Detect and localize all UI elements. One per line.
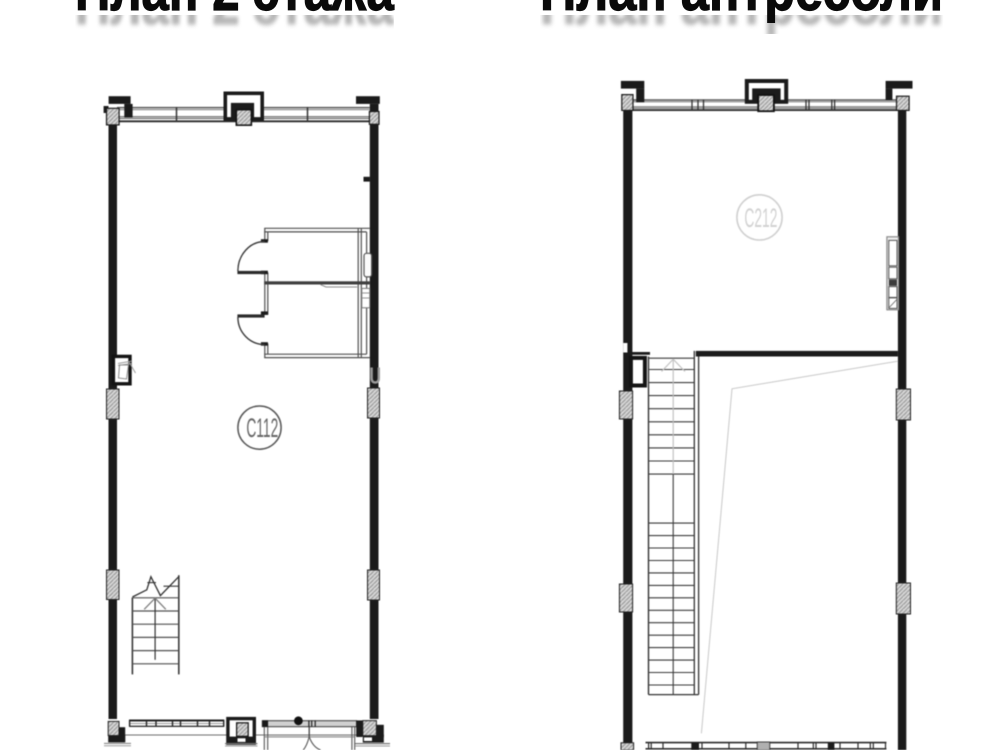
svg-text:C112: C112 — [246, 414, 278, 443]
svg-text:C212: C212 — [744, 204, 777, 233]
